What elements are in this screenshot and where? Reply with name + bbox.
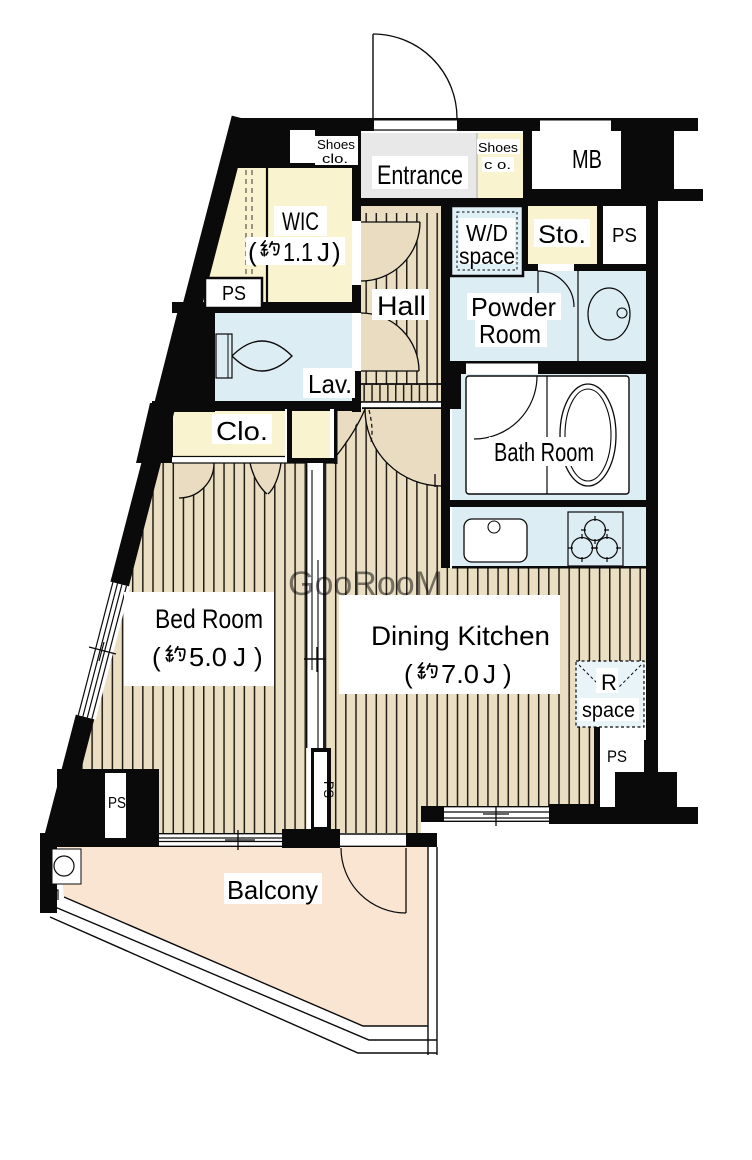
svg-text:Bath Room: Bath Room xyxy=(494,437,594,467)
svg-text:space: space xyxy=(459,243,515,269)
svg-text:Dining Kitchen: Dining Kitchen xyxy=(371,621,550,651)
svg-text:PS: PS xyxy=(321,781,337,798)
svg-text:c o.: c o. xyxy=(484,157,511,172)
svg-text:Lav.: Lav. xyxy=(308,369,352,399)
svg-text:(: ( xyxy=(248,237,257,267)
svg-text:): ) xyxy=(332,237,341,267)
svg-text:PS: PS xyxy=(108,795,126,812)
svg-text:Balcony: Balcony xyxy=(227,875,318,905)
svg-text:Entrance: Entrance xyxy=(377,160,463,190)
svg-text:PS: PS xyxy=(607,747,627,766)
svg-text:5.0: 5.0 xyxy=(189,642,227,672)
svg-text:Room: Room xyxy=(479,319,541,349)
svg-text:Hall: Hall xyxy=(377,291,426,321)
svg-text:Shoes: Shoes xyxy=(317,137,356,152)
svg-text:): ) xyxy=(254,642,263,672)
svg-text:Clo.: Clo. xyxy=(216,416,268,446)
svg-text:PS: PS xyxy=(612,225,637,247)
svg-text:J: J xyxy=(483,659,496,689)
svg-text:7.0: 7.0 xyxy=(441,659,479,689)
svg-text:MB: MB xyxy=(572,144,602,174)
svg-text:(: ( xyxy=(152,642,161,672)
svg-text:space: space xyxy=(582,699,635,722)
svg-text:WIC: WIC xyxy=(282,208,319,236)
svg-text:): ) xyxy=(503,659,512,689)
svg-text:Shoes: Shoes xyxy=(478,140,519,155)
svg-text:(: ( xyxy=(404,659,413,689)
svg-text:PS: PS xyxy=(222,283,246,305)
svg-text:Sto.: Sto. xyxy=(538,221,586,249)
svg-text:Powder: Powder xyxy=(471,292,556,322)
svg-text:Bed Room: Bed Room xyxy=(155,604,263,634)
svg-text:GooRooM: GooRooM xyxy=(288,565,443,603)
svg-text:J: J xyxy=(233,642,246,672)
svg-text:R: R xyxy=(601,670,617,695)
svg-text:J: J xyxy=(317,237,330,267)
svg-text:clo.: clo. xyxy=(322,151,348,166)
svg-text:1.1: 1.1 xyxy=(283,237,313,267)
